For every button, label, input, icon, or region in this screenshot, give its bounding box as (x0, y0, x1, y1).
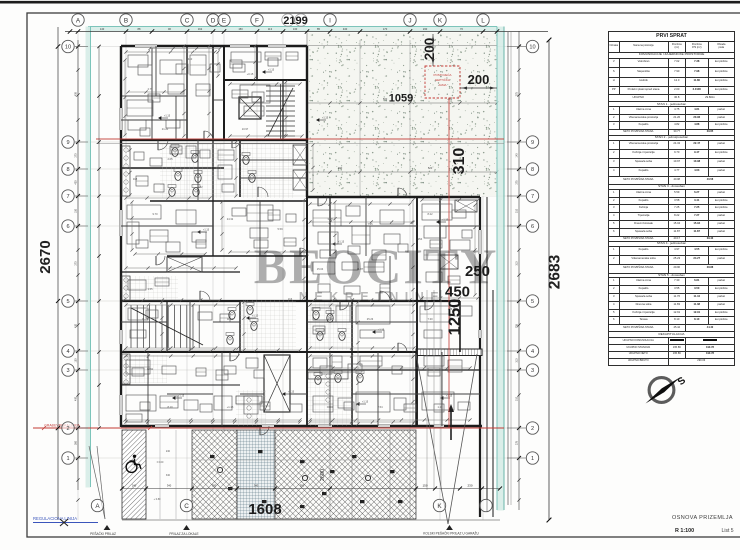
svg-text:+1.15: +1.15 (288, 391, 295, 394)
svg-text:216: 216 (288, 297, 293, 301)
svg-text:12.91: 12.91 (147, 367, 154, 371)
svg-text:1608: 1608 (248, 501, 281, 518)
svg-text:L: L (481, 17, 485, 24)
svg-text:+1.15: +1.15 (362, 401, 369, 404)
svg-text:130: 130 (293, 27, 298, 31)
svg-text:NEKRETNINE: NEKRETNINE (299, 290, 445, 304)
svg-text:310: 310 (516, 261, 519, 266)
svg-text:F: F (255, 17, 259, 24)
svg-text:275: 275 (516, 92, 519, 97)
svg-text:270: 270 (75, 261, 78, 266)
svg-text:410: 410 (188, 57, 193, 61)
svg-text:4: 4 (531, 349, 534, 355)
svg-text:9.70: 9.70 (152, 212, 158, 216)
svg-text:230: 230 (467, 484, 472, 488)
svg-text:3: 3 (531, 368, 534, 374)
svg-text:340: 340 (166, 474, 171, 477)
svg-text:4.82: 4.82 (197, 185, 203, 189)
svg-text:4.97: 4.97 (327, 317, 333, 321)
svg-text:113: 113 (268, 27, 273, 31)
svg-text:A: A (76, 17, 81, 24)
svg-text:275: 275 (516, 440, 519, 445)
svg-text:140: 140 (100, 27, 105, 31)
svg-text:140: 140 (516, 153, 519, 158)
svg-text:2683: 2683 (547, 254, 564, 289)
svg-text:1: 1 (66, 456, 69, 462)
svg-text:2199: 2199 (283, 15, 307, 27)
svg-text:230: 230 (423, 27, 428, 31)
svg-text:10: 10 (529, 45, 535, 51)
svg-text:7.25: 7.25 (367, 222, 373, 226)
svg-text:+1.15: +1.15 (178, 395, 185, 398)
svg-text:A: A (95, 503, 100, 510)
svg-text:310: 310 (516, 208, 519, 213)
svg-text:6: 6 (531, 224, 534, 230)
svg-text:3: 3 (66, 368, 69, 374)
svg-text:400: 400 (75, 396, 78, 401)
svg-text:9: 9 (531, 140, 534, 146)
svg-text:JAMA: JAMA (438, 83, 446, 87)
svg-text:520: 520 (428, 166, 433, 170)
svg-text:2.54: 2.54 (377, 405, 383, 409)
svg-text:270: 270 (75, 153, 78, 158)
svg-text:9: 9 (66, 140, 69, 146)
svg-text:150: 150 (75, 208, 78, 213)
svg-text:+0.15: +0.15 (247, 72, 254, 76)
svg-text:400: 400 (75, 180, 78, 185)
svg-text:10: 10 (65, 45, 71, 51)
svg-text:K: K (438, 17, 443, 24)
svg-text:OSNOVA PRIZEMLJA: OSNOVA PRIZEMLJA (672, 515, 733, 521)
svg-text:25.23: 25.23 (367, 317, 374, 321)
svg-text:318: 318 (133, 177, 138, 181)
svg-text:3.58: 3.58 (327, 217, 333, 221)
svg-text:5.59: 5.59 (277, 227, 283, 231)
svg-text:+1.15: +1.15 (164, 115, 171, 118)
svg-text:1.10: 1.10 (437, 405, 443, 409)
svg-text:380: 380 (75, 440, 78, 445)
svg-text:310: 310 (516, 358, 519, 363)
svg-text:7: 7 (66, 194, 69, 200)
svg-text:1059: 1059 (389, 93, 413, 105)
svg-text:150: 150 (422, 484, 427, 488)
svg-text:8: 8 (66, 167, 69, 173)
svg-text:J: J (408, 17, 411, 24)
svg-text:REGULACIONA LINIJA: REGULACIONA LINIJA (33, 516, 77, 521)
svg-text:6: 6 (66, 224, 69, 230)
svg-text:+1.15: +1.15 (203, 229, 210, 232)
svg-text:4.75: 4.75 (147, 87, 153, 91)
svg-text:310: 310 (516, 396, 519, 401)
svg-text:240: 240 (166, 450, 171, 453)
svg-text:240: 240 (132, 484, 137, 488)
svg-text:+1.15: +1.15 (227, 405, 234, 409)
svg-text:1: 1 (531, 456, 534, 462)
svg-text:E: E (222, 17, 226, 24)
svg-text:7.30: 7.30 (427, 317, 433, 321)
svg-text:SEPTIČKA: SEPTIČKA (435, 77, 450, 82)
svg-text:755: 755 (516, 323, 519, 328)
svg-text:5: 5 (66, 299, 69, 305)
svg-text:+ 0.80: + 0.80 (154, 498, 161, 501)
svg-text:K: K (437, 503, 442, 510)
svg-text:24.32: 24.32 (227, 217, 234, 221)
svg-text:PEŠAČKI PRILAZ: PEŠAČKI PRILAZ (90, 531, 116, 536)
svg-text:340: 340 (254, 484, 259, 488)
svg-text:8: 8 (531, 167, 534, 173)
svg-text:275: 275 (516, 180, 519, 185)
svg-text:200: 200 (422, 38, 437, 61)
svg-text:List 5: List 5 (722, 528, 734, 534)
svg-text:3.20: 3.20 (247, 177, 253, 181)
svg-text:11.76: 11.76 (142, 317, 149, 321)
svg-text:310: 310 (451, 148, 468, 175)
svg-text:2670: 2670 (37, 240, 54, 273)
svg-text:7: 7 (531, 194, 534, 200)
svg-text:2: 2 (531, 426, 534, 432)
svg-text:5: 5 (531, 299, 534, 305)
svg-text:300: 300 (338, 166, 343, 170)
svg-text:430: 430 (343, 27, 348, 31)
svg-text:21.20: 21.20 (162, 127, 169, 131)
svg-text:150: 150 (75, 358, 78, 363)
svg-text:C: C (184, 503, 189, 510)
svg-text:R 1:100: R 1:100 (675, 528, 694, 534)
svg-text:150: 150 (238, 27, 243, 31)
svg-text:B: B (124, 17, 128, 24)
svg-text:200: 200 (468, 72, 490, 87)
svg-text:8.10: 8.10 (167, 405, 173, 409)
svg-text:D: D (211, 17, 216, 24)
svg-text:590: 590 (300, 484, 305, 488)
svg-text:10.97: 10.97 (242, 127, 249, 131)
svg-text:KOLSKI PEŠAČKI PRILAZ U GARAŽU: KOLSKI PEŠAČKI PRILAZ U GARAŽU (423, 531, 479, 536)
svg-text:500: 500 (383, 97, 388, 101)
svg-text:2.05: 2.05 (167, 157, 173, 161)
svg-text:1250: 1250 (446, 299, 464, 336)
svg-text:C: C (185, 17, 190, 24)
svg-text:PRILAZ ZA LOKALE: PRILAZ ZA LOKALE (169, 532, 198, 536)
svg-text:+1.15: +1.15 (322, 117, 329, 120)
svg-text:2: 2 (66, 426, 69, 432)
svg-text:3.55: 3.55 (147, 287, 153, 291)
svg-text:8.22: 8.22 (427, 212, 433, 216)
svg-text:162: 162 (198, 27, 203, 31)
svg-text:POSTOJEĆA: POSTOJEĆA (433, 72, 451, 77)
svg-text:± 0.00: ± 0.00 (157, 461, 164, 464)
svg-text:±0.00: ±0.00 (327, 405, 334, 409)
svg-text:340: 340 (167, 484, 172, 488)
svg-text:+1.15: +1.15 (268, 69, 275, 72)
svg-text:I: I (329, 17, 331, 24)
svg-text:2600: 2600 (320, 469, 326, 481)
svg-text:380: 380 (212, 484, 217, 488)
svg-text:11.83: 11.83 (227, 317, 234, 321)
svg-text:BEOCITY: BEOCITY (254, 238, 499, 294)
svg-text:170: 170 (383, 27, 388, 31)
svg-text:4: 4 (66, 349, 69, 355)
